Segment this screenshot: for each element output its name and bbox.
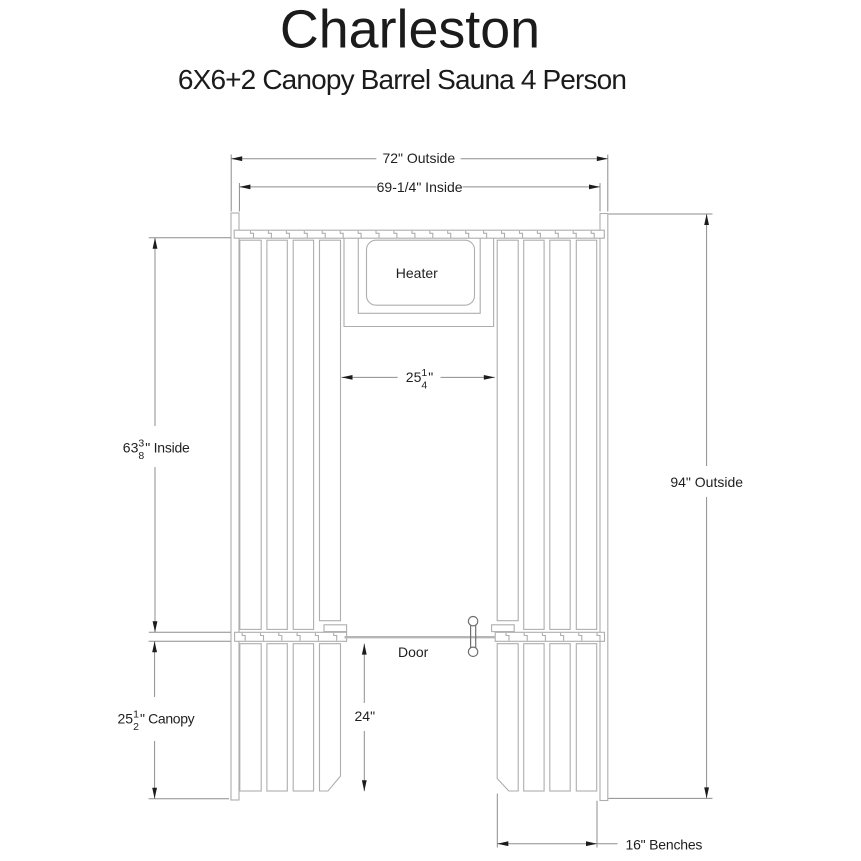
svg-text:Heater: Heater <box>396 265 438 281</box>
svg-text:Door: Door <box>398 644 429 660</box>
svg-text:": " <box>428 369 433 385</box>
svg-text:2: 2 <box>133 721 139 733</box>
svg-text:24": 24" <box>355 708 376 724</box>
svg-text:1: 1 <box>421 367 427 379</box>
svg-text:Charleston: Charleston <box>280 0 540 60</box>
svg-text:94" Outside: 94" Outside <box>670 474 743 490</box>
svg-text:63: 63 <box>123 440 139 456</box>
svg-text:" Inside: " Inside <box>145 440 190 456</box>
svg-text:1: 1 <box>133 708 139 720</box>
svg-text:72" Outside: 72" Outside <box>382 150 455 166</box>
svg-text:69-1/4" Inside: 69-1/4" Inside <box>377 179 463 195</box>
svg-text:" Canopy: " Canopy <box>140 711 195 727</box>
svg-text:25: 25 <box>406 369 422 385</box>
svg-text:3: 3 <box>138 437 144 449</box>
svg-text:8: 8 <box>138 450 144 462</box>
svg-text:4: 4 <box>421 380 427 392</box>
svg-text:6X6+2 Canopy Barrel Sauna 4 Pe: 6X6+2 Canopy Barrel Sauna 4 Person <box>178 64 626 95</box>
svg-text:16" Benches: 16" Benches <box>626 836 703 852</box>
svg-text:25: 25 <box>118 711 134 727</box>
